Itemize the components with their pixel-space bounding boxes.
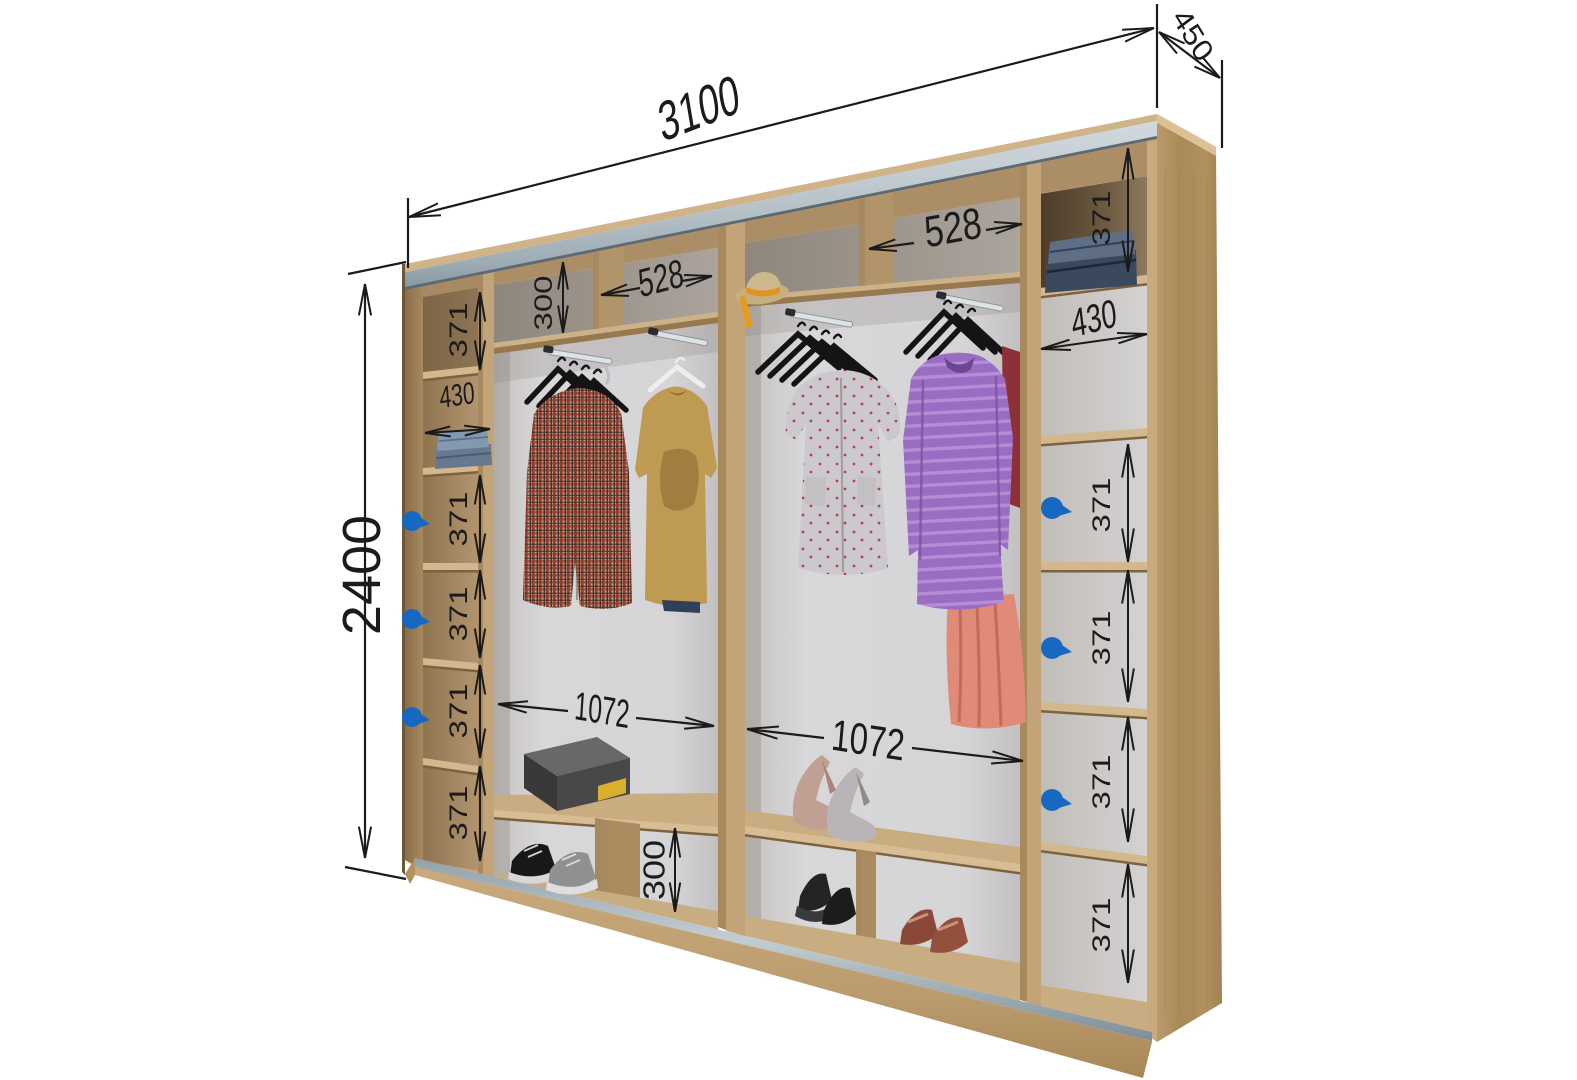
svg-text:371: 371 [1088,190,1116,245]
svg-text:430: 430 [438,375,475,415]
svg-text:2400: 2400 [332,515,392,635]
svg-text:371: 371 [1088,610,1116,665]
svg-text:371: 371 [1088,754,1116,809]
svg-text:371: 371 [445,785,473,840]
svg-text:371: 371 [445,586,473,641]
svg-text:300: 300 [530,275,558,330]
svg-text:528: 528 [922,199,984,258]
svg-text:371: 371 [1088,897,1116,952]
svg-text:371: 371 [445,302,473,357]
svg-text:1072: 1072 [573,684,631,738]
svg-text:371: 371 [1088,477,1116,532]
svg-text:371: 371 [445,683,473,738]
svg-text:300: 300 [638,840,672,900]
svg-text:371: 371 [445,491,473,546]
